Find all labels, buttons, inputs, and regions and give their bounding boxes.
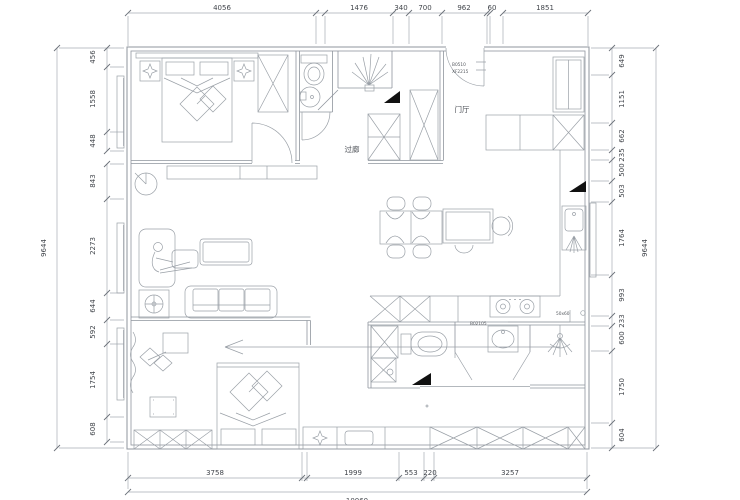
sink-1-basin — [300, 87, 320, 107]
kitchen-sink-drain — [573, 213, 576, 216]
floor-plan-canvas: 4056 1476 340 700 962 60 1851 3758 1999 … — [0, 0, 740, 500]
window-right — [590, 203, 596, 277]
wardrobe-2-x — [134, 430, 212, 449]
dim-left-total: 9644 — [40, 239, 48, 257]
burner-right-inner — [525, 304, 530, 309]
inner-wall-line — [131, 51, 585, 445]
foyer-label: 门厅 — [455, 105, 470, 114]
window-left-1 — [117, 76, 124, 148]
toilet-1-bowl — [304, 63, 324, 85]
dim-right-9: 600 — [618, 331, 626, 344]
dim-top-0: 4056 — [213, 4, 231, 12]
coffee-table-inner — [203, 242, 249, 262]
floor-dot — [426, 405, 428, 407]
kitchen: B02105 — [370, 57, 586, 327]
living-room — [135, 166, 317, 318]
outer-wall-line — [127, 47, 589, 449]
dim-right-2: 662 — [618, 129, 626, 142]
dining-area — [380, 197, 513, 258]
living-south-wall — [131, 317, 311, 345]
entry-opening — [446, 44, 484, 53]
bottom-fixture — [345, 431, 373, 445]
dim-bottom: 3758 1999 553 220 3257 10060 — [125, 452, 590, 500]
toilet-1-bowl-inner — [308, 67, 320, 81]
plant-alcove — [318, 51, 392, 110]
dim-bottom-0: 3758 — [206, 469, 224, 477]
bathroom-1 — [300, 55, 327, 107]
bathroom-2 — [371, 326, 447, 382]
stove-tag: B02105 — [470, 321, 487, 327]
bottom-cabinet-dividers — [337, 427, 568, 449]
chair-top-1 — [387, 197, 405, 210]
drain-tag: 50x60 — [556, 311, 570, 317]
star-symbol-left — [143, 64, 157, 78]
corridor: 过廊 — [345, 54, 439, 160]
bed-1-pillow-right — [200, 62, 228, 75]
foyer-west-wall — [440, 51, 444, 161]
bathroom-3: 50x60 — [488, 311, 585, 357]
bed-2-fold — [220, 413, 286, 426]
toilet-2-bowl-inner — [418, 336, 442, 352]
dim-bottom-3: 220 — [423, 469, 436, 477]
sofa-cushion-3 — [245, 289, 270, 311]
kitchen-sink-rack — [566, 236, 582, 253]
dim-left-7: 1754 — [89, 371, 97, 389]
dim-right-5: 503 — [618, 184, 626, 197]
dim-right: 649 1151 662 235 500 503 1764 993 233 60… — [591, 45, 659, 451]
bathroom1-door — [302, 112, 330, 140]
wardrobe-1-x — [258, 55, 288, 112]
dim-right-7: 993 — [618, 288, 626, 301]
dim-top-5: 60 — [488, 4, 497, 12]
sofa-cushion-1 — [193, 289, 218, 311]
basin-tap — [502, 331, 505, 334]
corridor-label: 过廊 — [345, 144, 360, 154]
upper-cabinets-dividers — [520, 115, 584, 150]
island-inner — [446, 212, 490, 240]
stool-half — [455, 245, 473, 253]
bath-strip-south-wall — [368, 322, 585, 388]
dim-left-4: 2273 — [89, 237, 97, 255]
bed-1-frame — [162, 58, 232, 142]
bedroom-2 — [131, 332, 300, 449]
desk-chair — [140, 348, 172, 371]
marker-triangle-3 — [412, 373, 431, 385]
sink-1-drain — [311, 96, 314, 99]
window-left-3 — [117, 328, 124, 400]
tall-cabinet-x — [410, 90, 438, 160]
dim-top-6: 1851 — [536, 4, 554, 12]
chair-bottom-2 — [413, 245, 431, 258]
dim-left-6: 592 — [89, 325, 97, 338]
dim-right-1: 1151 — [618, 90, 626, 108]
outer-walls — [127, 44, 589, 449]
bedroom1-south-wall — [131, 161, 443, 164]
entry-door-tag-1: B0510 — [452, 62, 466, 68]
dim-left-1: 1558 — [89, 90, 97, 108]
island — [443, 209, 493, 243]
bottom-cabinets — [303, 427, 585, 449]
dim-left-0: 456 — [89, 50, 97, 64]
chair-bottom-1 — [387, 245, 405, 258]
star-symbol-right — [237, 64, 251, 78]
bed-1-blanket — [180, 86, 226, 121]
bath2-drain — [387, 369, 393, 375]
dim-left-2: 448 — [89, 134, 97, 147]
dim-top-3: 700 — [418, 4, 431, 12]
bedroom-1 — [136, 53, 288, 142]
basin-bowl — [492, 330, 514, 348]
bed-1-pillow-left — [166, 62, 194, 75]
plant — [352, 54, 388, 91]
desk — [163, 333, 188, 353]
bath2-cabinet-1-x — [371, 326, 398, 358]
media-console — [167, 166, 317, 179]
dim-top-2: 340 — [394, 4, 407, 12]
dim-left-5: 644 — [89, 299, 97, 313]
entry-door-tag-2: XF2215 — [452, 69, 469, 75]
coffee-table — [200, 239, 252, 265]
upper-cabinets — [486, 115, 584, 150]
windows — [117, 76, 596, 400]
bed-2-frame — [217, 363, 299, 449]
bathroom3-door — [513, 352, 530, 380]
bottom-cabinet-x — [430, 427, 585, 449]
elevation-markers — [384, 91, 586, 385]
chair-top-2 — [413, 197, 431, 210]
dim-left-3: 843 — [89, 174, 97, 187]
dim-left-8: 608 — [89, 422, 97, 435]
bathroom1-walls — [300, 51, 333, 112]
dim-right-3: 235 — [618, 148, 626, 161]
bed-1-fold — [164, 78, 230, 93]
bed-2-blanket — [230, 371, 282, 411]
occupant-head — [154, 243, 163, 252]
dining-table-detail — [386, 211, 430, 244]
toilet-2-bowl — [411, 332, 447, 356]
dim-right-total: 9644 — [641, 239, 649, 257]
entry-tag-leader — [476, 62, 486, 70]
footrest — [172, 250, 198, 268]
media-console-marks — [240, 166, 267, 179]
bed-2-pillow-left — [221, 429, 255, 445]
dim-bottom-2: 553 — [404, 469, 417, 477]
extension-lines-top — [128, 16, 588, 46]
dim-right-11: 604 — [618, 428, 626, 442]
burner-left — [496, 300, 510, 314]
dim-bottom-1: 1999 — [344, 469, 362, 477]
bedroom1-east-wall — [296, 51, 300, 161]
burner-left-inner — [501, 304, 506, 309]
direction-arrow — [225, 325, 560, 407]
south-counter — [370, 296, 560, 322]
corridor-cabinet-x — [368, 114, 400, 160]
window-left-2 — [117, 223, 124, 293]
bath-strip-north-wall — [368, 322, 585, 388]
dim-bottom-4: 3257 — [501, 469, 519, 477]
headboard-shelf — [136, 53, 258, 58]
shower-head — [548, 338, 572, 357]
burner-right — [520, 300, 534, 314]
marker-triangle-1 — [384, 91, 400, 103]
foyer: 门厅 B0510 XF2215 — [452, 62, 486, 114]
stool-round — [492, 217, 510, 235]
bed-2-pillow-right — [262, 429, 296, 445]
bottom-star-symbol — [313, 431, 327, 445]
dim-right-4: 500 — [618, 163, 626, 176]
sofa — [185, 286, 277, 318]
dim-top-1: 1476 — [350, 4, 368, 12]
sofa-cushion-2 — [219, 289, 244, 311]
marker-triangle-2 — [569, 181, 586, 192]
dim-top-4: 962 — [457, 4, 470, 12]
bathroom2-door — [455, 352, 472, 380]
plant-leaves — [352, 54, 388, 85]
bedroom1-door — [252, 123, 292, 163]
dim-top: 4056 1476 340 700 962 60 1851 — [125, 4, 591, 46]
toilet-2-tank — [401, 334, 411, 354]
dim-right-10: 1750 — [618, 378, 626, 396]
floor-plan-screenshot: 4056 1476 340 700 962 60 1851 3758 1999 … — [0, 0, 740, 500]
toilet-1-tank — [301, 55, 327, 63]
dim-right-8: 233 — [618, 314, 626, 327]
side-table-dots — [153, 400, 174, 414]
dim-left: 456 1558 448 843 2273 644 592 1754 608 9… — [40, 45, 124, 451]
dim-right-6: 1764 — [618, 229, 626, 247]
arrow-path — [225, 325, 560, 354]
dim-right-0: 649 — [618, 54, 626, 67]
